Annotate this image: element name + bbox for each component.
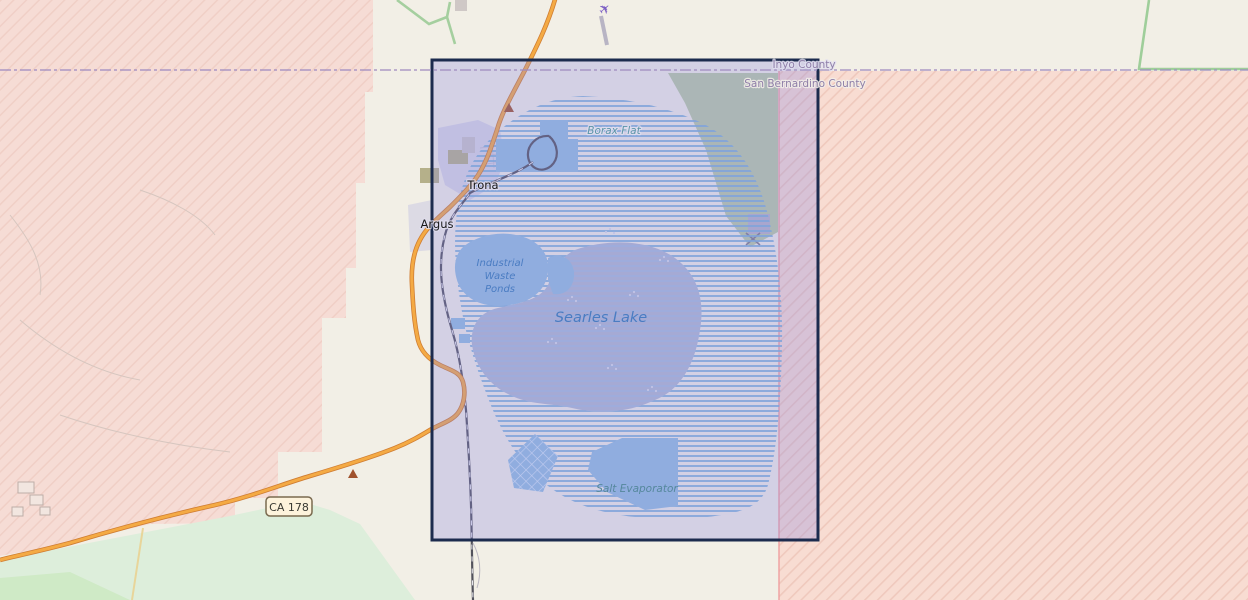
map-viewport[interactable]: ✈ [0, 0, 1248, 600]
map-canvas[interactable]: ✈ [0, 0, 1248, 600]
waste-ponds-label-3: Ponds [485, 284, 515, 295]
locality-label-borax-flat: Borax Flat [587, 125, 641, 137]
town-label-argus: Argus [421, 217, 454, 231]
quarry-patch [455, 0, 467, 11]
town-label-trona: Trona [466, 178, 498, 192]
military-area-east [779, 71, 1248, 600]
waste-ponds-label-2: Waste [485, 271, 516, 282]
lake-label: Searles Lake [555, 310, 647, 326]
road-shield-label: CA 178 [269, 501, 309, 514]
salt-evaporator-label: Salt Evaporator [596, 483, 678, 495]
waste-ponds-label-1: Industrial [477, 258, 524, 269]
road-shield-ca178: CA 178 [266, 497, 312, 516]
county-label-north: Inyo County [772, 59, 835, 71]
county-label-south: San Bernardino County [744, 78, 866, 90]
